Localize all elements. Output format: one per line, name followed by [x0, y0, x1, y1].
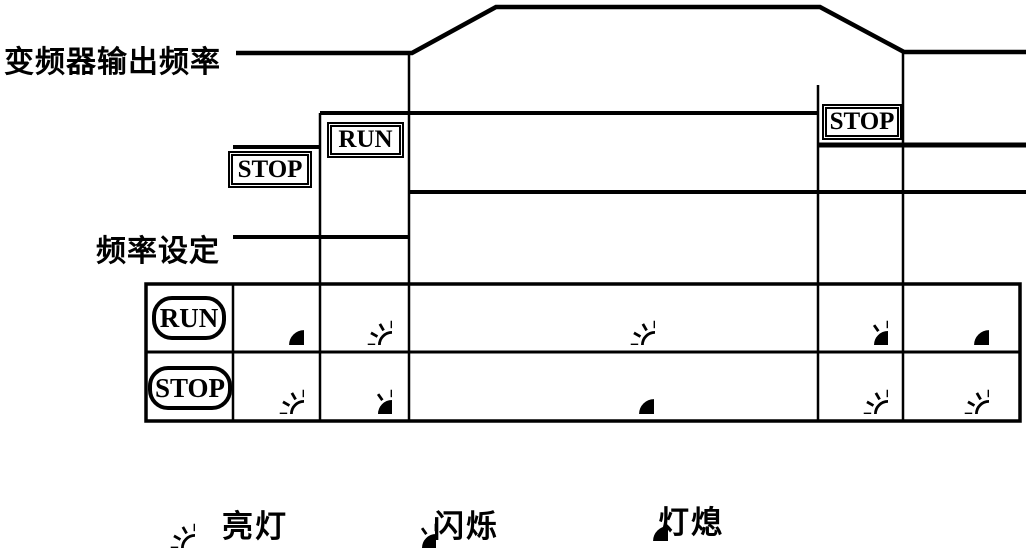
led-lit-icon [248, 358, 304, 414]
timing-diagram: 变频器输出频率 频率设定 STOP RUN STOP RUN STOP 亮灯 闪… [0, 0, 1029, 559]
led-lit-icon [933, 358, 989, 414]
run-led-badge: RUN [152, 296, 226, 340]
output-frequency-waveform [236, 7, 1026, 53]
led-lit-icon [832, 358, 888, 414]
stop-key-first-label: STOP [231, 154, 309, 185]
legend-lit-label: 亮灯 [222, 501, 288, 546]
stop-key-second: STOP [822, 104, 902, 140]
led-lit-icon [139, 492, 195, 548]
led-off-icon [598, 358, 654, 414]
led-flash-icon [336, 358, 392, 414]
frequency-setting-signal [233, 192, 1026, 237]
legend-flash-label: 闪烁 [433, 501, 499, 546]
stop-led-badge: STOP [148, 366, 232, 410]
run-key: RUN [327, 122, 404, 158]
led-lit-icon [599, 289, 655, 345]
frequency-setting-label: 频率设定 [96, 226, 220, 270]
stop-key-first: STOP [228, 151, 312, 188]
led-off-icon [248, 289, 304, 345]
led-flash-icon [380, 492, 436, 548]
run-key-label: RUN [330, 125, 401, 155]
led-lit-icon [336, 289, 392, 345]
stop-key-second-label: STOP [825, 107, 899, 137]
diagram-lines [0, 0, 1029, 559]
event-marker-lines [320, 52, 903, 284]
output-frequency-label: 变频器输出频率 [4, 37, 221, 81]
legend-off-label: 灯熄 [658, 497, 724, 542]
led-off-icon [933, 289, 989, 345]
led-flash-icon [832, 289, 888, 345]
